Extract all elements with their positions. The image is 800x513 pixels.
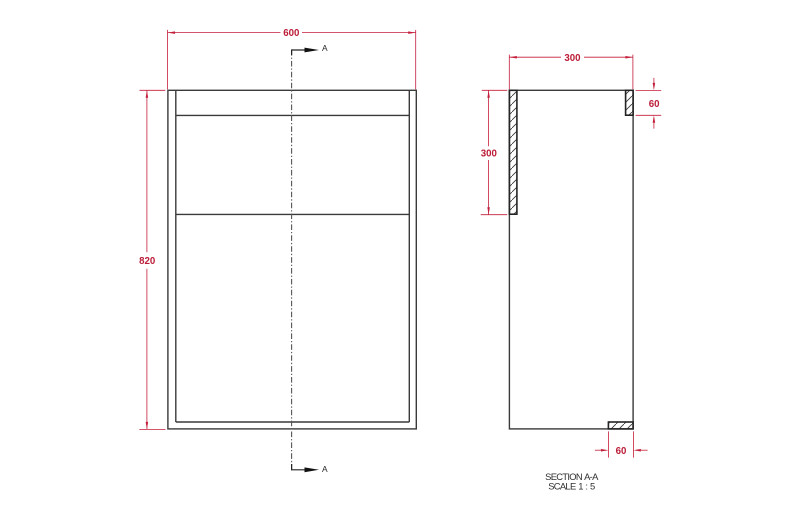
svg-text:A: A	[322, 464, 328, 474]
svg-text:820: 820	[139, 256, 155, 267]
svg-text:60: 60	[649, 99, 660, 110]
svg-text:300: 300	[481, 149, 497, 160]
svg-text:300: 300	[564, 53, 580, 64]
svg-text:60: 60	[616, 446, 627, 457]
svg-text:A: A	[322, 43, 328, 53]
svg-text:SCALE 1 : 5: SCALE 1 : 5	[548, 480, 595, 491]
svg-text:600: 600	[283, 28, 299, 39]
